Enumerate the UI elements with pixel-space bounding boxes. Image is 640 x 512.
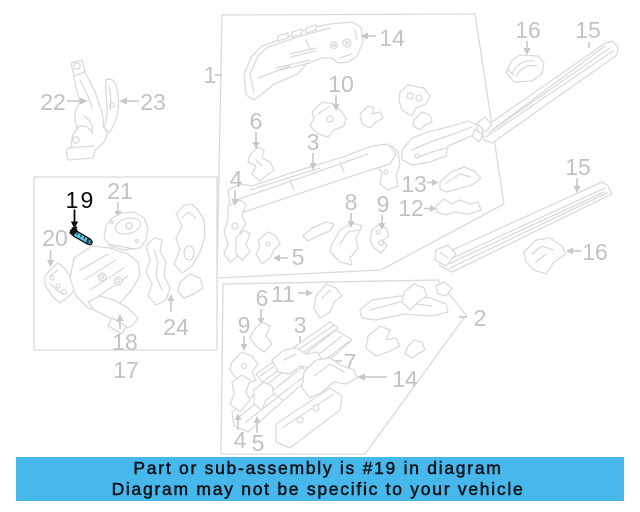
svg-text:11: 11 bbox=[271, 281, 295, 307]
svg-text:16: 16 bbox=[582, 239, 608, 265]
svg-text:4: 4 bbox=[230, 166, 243, 192]
svg-text:8: 8 bbox=[345, 189, 358, 215]
svg-text:13: 13 bbox=[401, 171, 427, 197]
svg-text:10: 10 bbox=[328, 71, 354, 97]
svg-text:24: 24 bbox=[163, 314, 189, 340]
svg-text:1: 1 bbox=[204, 62, 217, 88]
svg-text:17: 17 bbox=[113, 357, 139, 383]
svg-text:20: 20 bbox=[42, 225, 68, 251]
svg-text:22: 22 bbox=[40, 89, 66, 115]
svg-text:21: 21 bbox=[107, 178, 133, 204]
svg-text:18: 18 bbox=[112, 329, 138, 355]
svg-text:14: 14 bbox=[379, 25, 405, 51]
svg-text:5: 5 bbox=[292, 244, 305, 270]
svg-text:Part or sub-assembly is #19 in: Part or sub-assembly is #19 in diagram bbox=[133, 458, 502, 478]
svg-text:Diagram may not be specific to: Diagram may not be specific to your vehi… bbox=[112, 479, 525, 499]
svg-text:23: 23 bbox=[140, 89, 166, 115]
svg-text:3: 3 bbox=[307, 129, 320, 155]
svg-text:6: 6 bbox=[256, 285, 269, 311]
svg-text:4: 4 bbox=[234, 427, 247, 453]
svg-text:2: 2 bbox=[474, 305, 487, 331]
svg-text:12: 12 bbox=[398, 195, 424, 221]
svg-text:16: 16 bbox=[515, 17, 541, 43]
svg-text:3: 3 bbox=[294, 312, 307, 338]
svg-text:9: 9 bbox=[377, 191, 390, 217]
svg-text:14: 14 bbox=[392, 366, 418, 392]
svg-text:9: 9 bbox=[238, 312, 251, 338]
svg-text:15: 15 bbox=[575, 17, 601, 43]
svg-text:5: 5 bbox=[252, 430, 265, 456]
svg-text:19: 19 bbox=[66, 187, 96, 213]
svg-text:15: 15 bbox=[565, 154, 591, 180]
svg-text:6: 6 bbox=[250, 108, 263, 134]
